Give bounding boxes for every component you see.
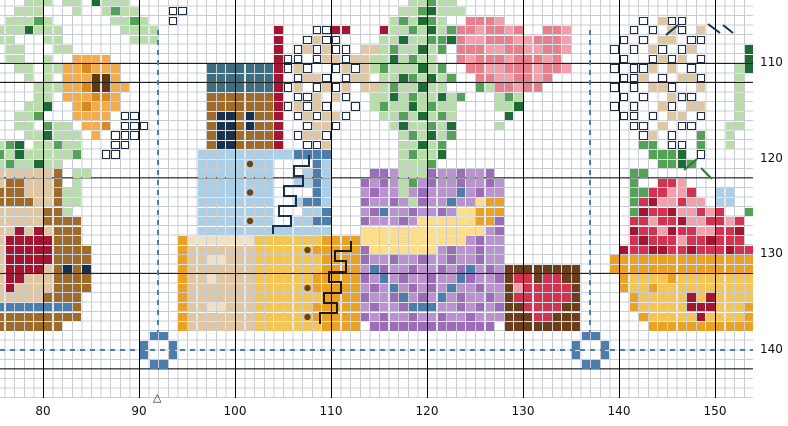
stitch-cell [572,293,581,301]
stitch-cell [255,284,264,292]
stitch-cell [303,45,312,53]
stitch-cell [630,102,639,110]
stitch-cell [236,169,245,177]
stitch-cell [265,208,274,216]
stitch-cell [207,208,216,216]
stitch-cell [466,217,475,225]
stitch-cell [620,265,629,273]
stitch-cell [447,265,456,273]
stitch-cell [303,217,312,225]
stitch-cell [236,255,245,263]
stitch-cell [495,255,504,263]
stitch-cell [265,313,274,321]
stitch-cell [0,141,4,149]
stitch-cell [111,74,120,82]
stitch-cell [428,160,437,168]
stitch-cell [217,236,226,244]
stitch-cell [63,265,72,273]
stitch-cell [54,26,63,34]
stitch-cell [313,322,322,330]
stitch-cell [370,83,379,91]
stitch-cell [63,303,72,311]
stitch-cell [34,112,43,120]
stitch-cell [658,265,667,273]
stitch-cell [63,150,72,158]
stitch-cell [514,83,523,91]
stitch-cell [332,246,341,254]
stitch-cell [457,265,466,273]
stitch-cell [476,26,485,34]
stitch-cell [102,55,111,63]
stitch-cell [649,198,658,206]
stitch-cell [505,313,514,321]
stitch-cell [246,198,255,206]
stitch-cell [476,74,485,82]
stitch-cell [486,188,495,196]
stitch-cell [495,236,504,244]
stitch-cell [735,102,744,110]
stitch-cell [726,265,735,273]
stitch-cell [0,217,4,225]
stitch-cell [217,322,226,330]
stitch-cell [562,64,571,72]
stitch-cell [668,198,677,206]
stitch-cell [34,26,43,34]
stitch-cell [198,322,207,330]
stitch-cell [658,55,667,63]
stitch-cell [25,284,34,292]
stitch-cell [697,284,706,292]
stitch-cell [140,26,149,34]
stitch-cell [399,112,408,120]
stitch-cell [226,284,235,292]
stitch-cell [207,112,216,120]
stitch-cell [54,208,63,216]
stitch-cell [73,265,82,273]
stitch-cell [226,74,235,82]
stitch-cell [246,169,255,177]
stitch-cell [418,284,427,292]
stitch-cell [246,236,255,244]
stitch-cell [687,303,696,311]
stitch-cell [438,17,447,25]
stitch-cell [716,227,725,235]
stitch-cell [476,293,485,301]
stitch-cell [255,255,264,263]
stitch-cell [294,74,303,82]
stitch-cell [303,227,312,235]
stitch-cell [274,265,283,273]
stitch-cell [274,102,283,110]
stitch-cell [6,313,15,321]
stitch-cell [668,83,677,91]
stitch-cell [25,322,34,330]
stitch-cell [726,217,735,225]
stitch-cell [582,332,591,340]
stitch-cell [495,293,504,301]
stitch-cell [447,198,456,206]
stitch-cell [284,83,293,91]
stitch-cell [178,246,187,254]
stitch-cell [207,83,216,91]
stitch-cell [399,255,408,263]
stitch-cell [34,208,43,216]
stitch-cell [121,7,130,15]
center-marker-triangle: △ [153,392,161,403]
stitch-cell [668,112,677,120]
stitch-cell [15,255,24,263]
stitch-cell [438,179,447,187]
stitch-cell [639,131,648,139]
stitch-cell [198,284,207,292]
stitch-cell [630,293,639,301]
stitch-cell [428,255,437,263]
stitch-cell [313,246,322,254]
stitch-cell [706,313,715,321]
stitch-cell [0,198,4,206]
stitch-cell [130,36,139,44]
stitch-cell [735,303,744,311]
stitch-cell [409,122,418,130]
stitch-cell [313,274,322,282]
stitch-cell [409,7,418,15]
stitch-cell [524,64,533,72]
stitch-cell [6,55,15,63]
stitch-cell [687,236,696,244]
stitch-cell [332,36,341,44]
stitch-cell [274,293,283,301]
stitch-cell [678,160,687,168]
stitch-cell [284,227,293,235]
stitch-cell [44,303,53,311]
stitch-cell [466,322,475,330]
stitch-cell [351,55,360,63]
stitch-cell [486,217,495,225]
stitch-cell [313,112,322,120]
stitch-cell [313,208,322,216]
stitch-cell [639,36,648,44]
stitch-cell [236,102,245,110]
stitch-cell [572,284,581,292]
stitch-cell [303,208,312,216]
stitch-cell [630,179,639,187]
stitch-cell [217,313,226,321]
stitch-cell [447,188,456,196]
stitch-cell [457,179,466,187]
stitch-cell [34,322,43,330]
stitch-cell [226,313,235,321]
stitch-cell [486,284,495,292]
stitch-cell [342,274,351,282]
stitch-cell [207,74,216,82]
stitch-cell [486,179,495,187]
stitch-cell [678,198,687,206]
stitch-cell [246,122,255,130]
stitch-cell [428,150,437,158]
stitch-cell [476,322,485,330]
stitch-cell [294,198,303,206]
stitch-cell [63,246,72,254]
stitch-cell [658,284,667,292]
stitch-cell [274,227,283,235]
stitch-cell [361,274,370,282]
stitch-cell [390,36,399,44]
stitch-cell [639,122,648,130]
stitch-cell [466,246,475,254]
stitch-cell [726,313,735,321]
stitch-cell [294,64,303,72]
stitch-cell [457,45,466,53]
stitch-cell [130,112,139,120]
stitch-cell [217,93,226,101]
stitch-cell [265,227,274,235]
stitch-cell [658,83,667,91]
stitch-cell [217,274,226,282]
stitch-cell [649,227,658,235]
stitch-cell [438,0,447,6]
stitch-cell [361,83,370,91]
stitch-cell [457,293,466,301]
stitch-cell [678,141,687,149]
stitch-cell [217,112,226,120]
stitch-cell [63,131,72,139]
stitch-cell [313,227,322,235]
stitch-cell [514,322,523,330]
stitch-cell [678,179,687,187]
stitch-cell [505,112,514,120]
stitch-cell [178,322,187,330]
stitch-cell [706,265,715,273]
stitch-cell [370,102,379,110]
stitch-cell [428,284,437,292]
stitch-cell [207,102,216,110]
stitch-cell [217,122,226,130]
stitch-cell [726,284,735,292]
stitch-cell [54,83,63,91]
stitch-cell [217,188,226,196]
stitch-cell [745,274,754,282]
stitch-cell [274,313,283,321]
stitch-cell [438,26,447,34]
stitch-cell [313,131,322,139]
stitch-cell [130,122,139,130]
stitch-cell [361,179,370,187]
stitch-cell [34,188,43,196]
stitch-cell [25,217,34,225]
stitch-cell [649,141,658,149]
stitch-cell [342,236,351,244]
stitch-cell [25,131,34,139]
stitch-cell [73,64,82,72]
stitch-cell [447,93,456,101]
stitch-cell [697,36,706,44]
stitch-cell [207,122,216,130]
x-axis-label: 80 [27,404,59,418]
stitch-cell [82,102,91,110]
stitch-cell [294,217,303,225]
stitch-cell [553,265,562,273]
stitch-cell [44,26,53,34]
stitch-cell [678,55,687,63]
stitch-cell [390,112,399,120]
stitch-cell [332,64,341,72]
stitch-cell [457,188,466,196]
stitch-cell [44,131,53,139]
stitch-cell [380,322,389,330]
stitch-cell [572,274,581,282]
stitch-cell [447,179,456,187]
stitch-cell [313,36,322,44]
stitch-cell [486,64,495,72]
stitch-cell [447,313,456,321]
stitch-cell [236,112,245,120]
stitch-cell [543,26,552,34]
stitch-cell [313,217,322,225]
stitch-cell [303,293,312,301]
stitch-cell [514,26,523,34]
stitch-cell [63,236,72,244]
stitch-cell [332,93,341,101]
stitch-cell [322,217,331,225]
stitch-cell [34,274,43,282]
stitch-cell [678,112,687,120]
stitch-cell [54,217,63,225]
stitch-cell [313,293,322,301]
stitch-cell [370,188,379,196]
stitch-cell [15,26,24,34]
stitch-cell [121,112,130,120]
stitch-cell [207,150,216,158]
stitch-cell [44,93,53,101]
stitch-cell [44,313,53,321]
stitch-cell [207,274,216,282]
stitch-cell [102,74,111,82]
stitch-cell [380,45,389,53]
stitch-cell [495,64,504,72]
stitch-cell [44,188,53,196]
stitch-cell [706,217,715,225]
stitch-cell [428,83,437,91]
stitch-cell [610,255,619,263]
stitch-cell [745,313,754,321]
stitch-cell [15,160,24,168]
stitch-cell [524,55,533,63]
stitch-cell [428,102,437,110]
stitch-cell [246,179,255,187]
stitch-cell [495,179,504,187]
stitch-cell [6,293,15,301]
stitch-cell [486,36,495,44]
stitch-cell [639,236,648,244]
x-axis-label: 100 [219,404,251,418]
stitch-cell [73,150,82,158]
stitch-cell [486,83,495,91]
stitch-cell [390,198,399,206]
stitch-cell [73,188,82,196]
stitch-cell [102,64,111,72]
stitch-cell [6,265,15,273]
stitch-cell [226,112,235,120]
stitch-cell [486,255,495,263]
stitch-cell [534,322,543,330]
stitch-cell [390,83,399,91]
stitch-cell [726,236,735,244]
stitch-cell [466,64,475,72]
stitch-cell [457,208,466,216]
stitch-cell [284,150,293,158]
stitch-cell [15,169,24,177]
stitch-cell [236,93,245,101]
stitch-cell [198,246,207,254]
stitch-cell [6,284,15,292]
stitch-cell [630,198,639,206]
stitch-cell [562,313,571,321]
stitch-cell [745,246,754,254]
stitch-cell [294,179,303,187]
stitch-cell [486,313,495,321]
stitch-cell [274,55,283,63]
stitch-cell [630,274,639,282]
stitch-cell [6,141,15,149]
stitch-cell [322,45,331,53]
stitch-cell [687,313,696,321]
stitch-cell [54,322,63,330]
stitch-cell [514,45,523,53]
stitch-cell [44,141,53,149]
stitch-cell [265,102,274,110]
stitch-cell [745,208,754,216]
stitch-cell [34,246,43,254]
stitch-cell [476,303,485,311]
stitch-cell [322,255,331,263]
stitch-cell [265,112,274,120]
stitch-cell [370,45,379,53]
stitch-cell [409,198,418,206]
stitch-cell [246,102,255,110]
stitch-cell [687,246,696,254]
stitch-cell [25,169,34,177]
stitch-cell [418,236,427,244]
stitch-cell [236,236,245,244]
stitch-cell [15,64,24,72]
stitch-cell [246,227,255,235]
stitch-cell [649,208,658,216]
stitch-cell [668,26,677,34]
stitch-cell [236,303,245,311]
stitch-cell [34,17,43,25]
stitch-cell [524,74,533,82]
stitch-cell [188,236,197,244]
stitch-cell [457,227,466,235]
stitch-cell [25,7,34,15]
stitch-cell [438,236,447,244]
stitch-cell [735,236,744,244]
stitch-cell [428,141,437,149]
stitch-cell [130,131,139,139]
stitch-cell [476,236,485,244]
stitch-cell [428,64,437,72]
stitch-cell [370,284,379,292]
stitch-cell [217,255,226,263]
stitch-cell [284,284,293,292]
stitch-cell [313,303,322,311]
stitch-cell [265,141,274,149]
stitch-cell [495,227,504,235]
stitch-cell [399,93,408,101]
stitch-cell [390,236,399,244]
stitch-cell [572,351,581,359]
stitch-cell [409,160,418,168]
